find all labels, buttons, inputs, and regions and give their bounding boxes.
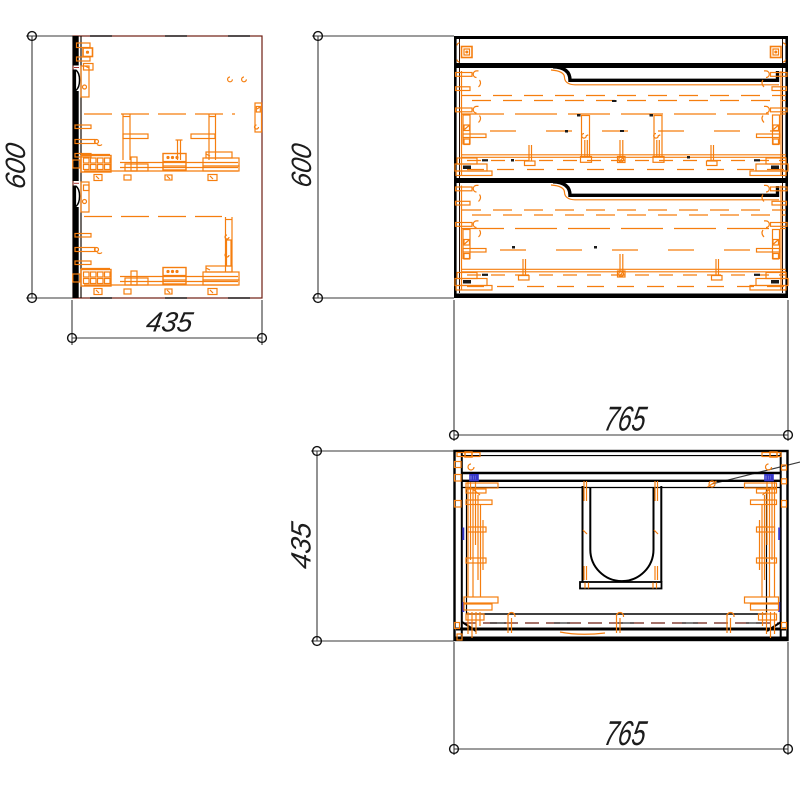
svg-text:765: 765 — [602, 401, 650, 439]
svg-text:435: 435 — [144, 306, 196, 338]
svg-text:600: 600 — [0, 140, 31, 191]
svg-text:600: 600 — [285, 141, 317, 190]
svg-text:435: 435 — [285, 519, 317, 571]
svg-text:765: 765 — [602, 715, 650, 753]
